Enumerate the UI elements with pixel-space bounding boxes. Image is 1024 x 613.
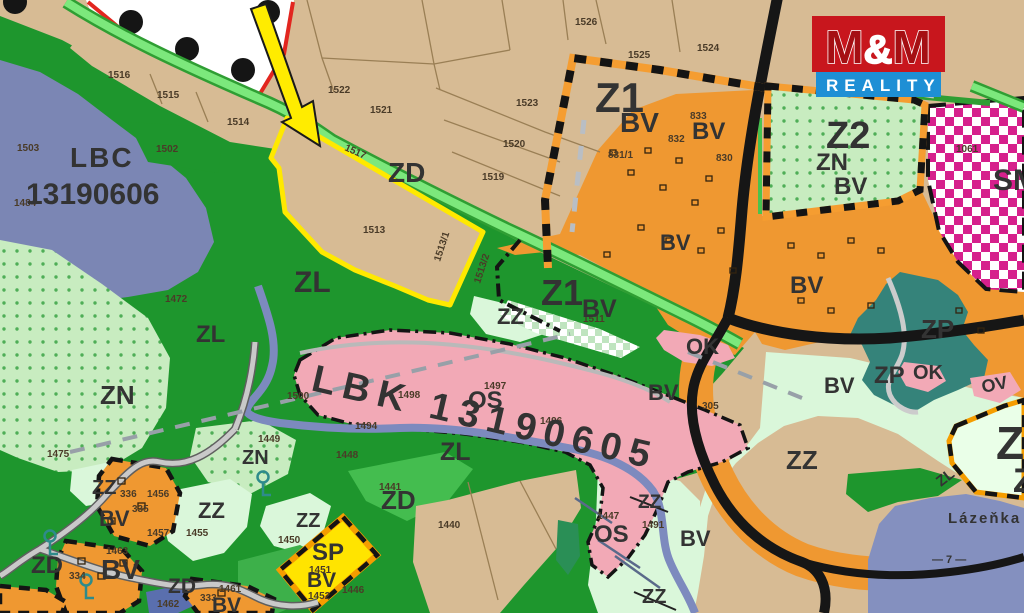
zone-label: — 7 — xyxy=(932,554,966,566)
parcel-label: 1524 xyxy=(697,43,720,54)
parcel-label: 1526 xyxy=(575,17,598,28)
zone-label: ZZ xyxy=(92,477,116,499)
parcel-label: 1475 xyxy=(47,449,70,460)
zone-label: BV xyxy=(790,272,823,299)
parcel-label: 1446 xyxy=(342,585,365,596)
parcel-label: 1491 xyxy=(642,520,665,531)
zone-label: BV xyxy=(620,107,659,138)
zone-label: BV xyxy=(212,594,241,613)
parcel-label: 1522 xyxy=(328,85,351,96)
parcel-label: 1462 xyxy=(157,599,180,610)
parcel-label: 831/1 xyxy=(608,150,633,161)
zone-label: OS xyxy=(594,521,629,548)
zone-label: ZP xyxy=(921,314,954,344)
zone-label: BV xyxy=(834,173,867,200)
zone-label: OK xyxy=(913,362,944,384)
zone-label: BV xyxy=(660,230,691,255)
parcel-label: 1472 xyxy=(165,294,188,305)
parcel-label: 1516 xyxy=(108,70,131,81)
zone-label: SM xyxy=(993,164,1024,197)
parcel-label: 1457 xyxy=(147,528,170,539)
zone-label: BV xyxy=(692,118,725,145)
zone-label: OK xyxy=(686,334,719,359)
parcel-label: 335 xyxy=(132,504,149,515)
parcel-label: 1520 xyxy=(503,139,526,150)
parcel-label: 1449 xyxy=(258,434,281,445)
zone-label: LBC xyxy=(70,142,134,173)
parcel-label: 1450 xyxy=(278,535,301,546)
parcel-label: 1503 xyxy=(17,143,40,154)
parcel-label: 1456 xyxy=(147,489,170,500)
logo-mm-text: M&M xyxy=(825,21,931,73)
parcel-label: 1513 xyxy=(363,225,386,236)
zone-label: SP xyxy=(312,539,344,566)
parcel-label: 1525 xyxy=(628,50,651,61)
zone-label: OS xyxy=(468,387,503,414)
zone-label: ZL xyxy=(294,266,331,299)
logo-reality-text: REALITY xyxy=(826,76,941,95)
zone-label: ZN xyxy=(100,380,135,410)
parcel-label: 1521 xyxy=(370,105,393,116)
zone-label: BV xyxy=(582,295,617,323)
zone-label: ZZ xyxy=(198,498,225,523)
zone-label: ZN xyxy=(816,149,848,176)
parcel-label: 336 xyxy=(120,489,137,500)
zone-label: ZD xyxy=(168,575,196,598)
zone-label: BV xyxy=(824,373,855,398)
parcel-label: 1455 xyxy=(186,528,209,539)
parcel-label: 832 xyxy=(668,134,685,145)
zone-label: ZZ xyxy=(642,586,666,608)
zone-label: Lázeňka xyxy=(948,510,1021,527)
zone-label: BV xyxy=(680,526,711,551)
zone-label: BV xyxy=(648,380,679,405)
zoning-map: 1516151515141503150214841522152115231520… xyxy=(0,0,1024,613)
zone-label: ZP xyxy=(874,362,905,389)
parcel-label: 1448 xyxy=(336,450,359,461)
zone-label: ZN xyxy=(242,447,269,469)
zone-label: ZZ xyxy=(786,445,818,475)
zone-label: ZL xyxy=(440,438,471,466)
parcel-label: 1519 xyxy=(482,172,505,183)
zone-label: ZD xyxy=(381,485,416,515)
zone-label: ZD xyxy=(388,157,425,188)
zone-label: Z xyxy=(1013,462,1024,500)
parcel-label: 1502 xyxy=(156,144,179,155)
zone-label: ZZ xyxy=(638,492,662,513)
parcel-label: 1515 xyxy=(157,90,180,101)
zone-label: BV xyxy=(99,506,130,531)
zone-label: ZL xyxy=(196,321,225,348)
parcel-label: 1452 xyxy=(308,591,331,602)
zone-label: BV xyxy=(101,554,140,585)
parcel-label: 1494 xyxy=(355,421,378,432)
map-viewport[interactable]: 1516151515141503150214841522152115231520… xyxy=(0,0,1024,613)
zone-label: 13190606 xyxy=(26,178,159,211)
zone-label: ZD xyxy=(31,552,63,579)
parcel-label: 830 xyxy=(716,153,733,164)
zone-label: Z1 xyxy=(541,272,583,313)
parcel-label: 1514 xyxy=(227,117,250,128)
zone-label: ZZ xyxy=(296,510,320,532)
parcel-label: 305 xyxy=(702,401,719,412)
parcel-label: 1523 xyxy=(516,98,539,109)
parcel-label: 1440 xyxy=(438,520,461,531)
parcel-label: 1500 xyxy=(287,391,310,402)
zone-label: ZZ xyxy=(497,304,524,329)
zone-label: BV xyxy=(307,569,336,592)
mm-reality-logo[interactable]: M&M REALITY xyxy=(812,16,945,97)
parcel-label: 1061 xyxy=(956,144,979,155)
parcel-label: 334 xyxy=(69,571,86,582)
